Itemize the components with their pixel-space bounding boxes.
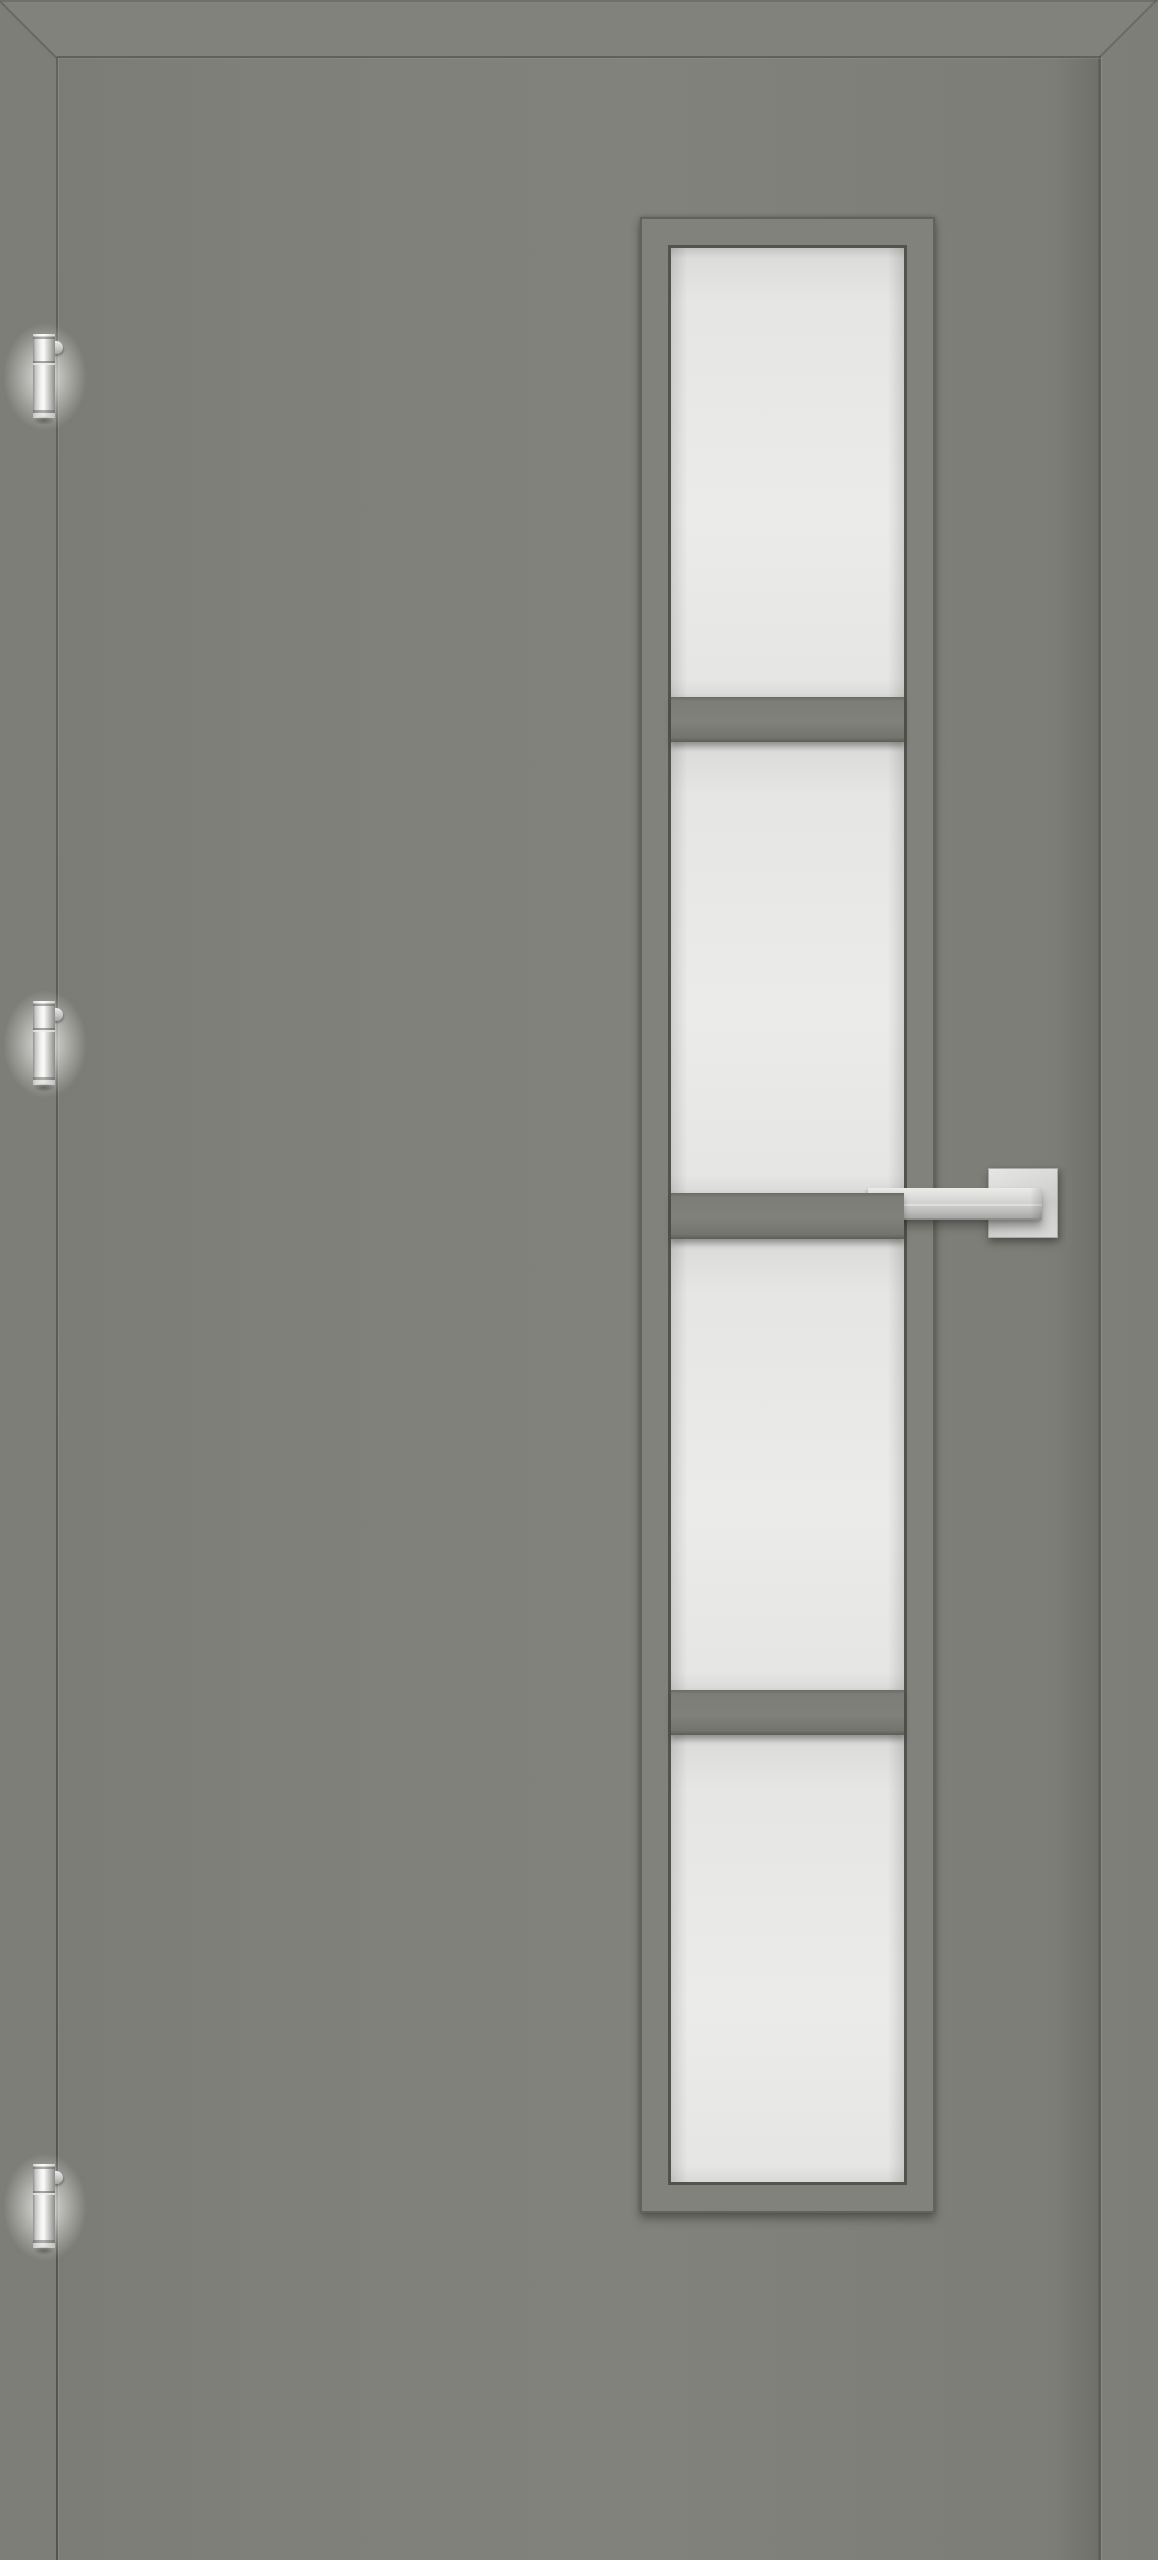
glazing-frame: [640, 217, 935, 2213]
hinge-2: [33, 1001, 55, 1085]
glazing-muntin-1: [671, 697, 904, 743]
hinge-barrel: [33, 334, 55, 418]
glass-pane-1: [671, 248, 904, 697]
glazing-muntin-2: [671, 1193, 904, 1239]
glass-pane-4: [671, 1735, 904, 2182]
glazing-opening: [668, 245, 907, 2185]
door-face-right-shading: [1055, 0, 1101, 2560]
door-face: [0, 0, 1158, 2560]
hinge-barrel: [33, 1001, 55, 1085]
hinge-barrel: [33, 2164, 55, 2248]
glazing-muntin-3: [671, 1690, 904, 1736]
door-image: [0, 0, 1158, 2560]
glass-pane-3: [671, 1239, 904, 1690]
door-edge-seam-top: [57, 56, 1101, 58]
hinge-3: [33, 2164, 55, 2248]
door-edge-seam-right: [1099, 57, 1101, 2560]
glass-pane-2: [671, 742, 904, 1193]
hinge-1: [33, 334, 55, 418]
